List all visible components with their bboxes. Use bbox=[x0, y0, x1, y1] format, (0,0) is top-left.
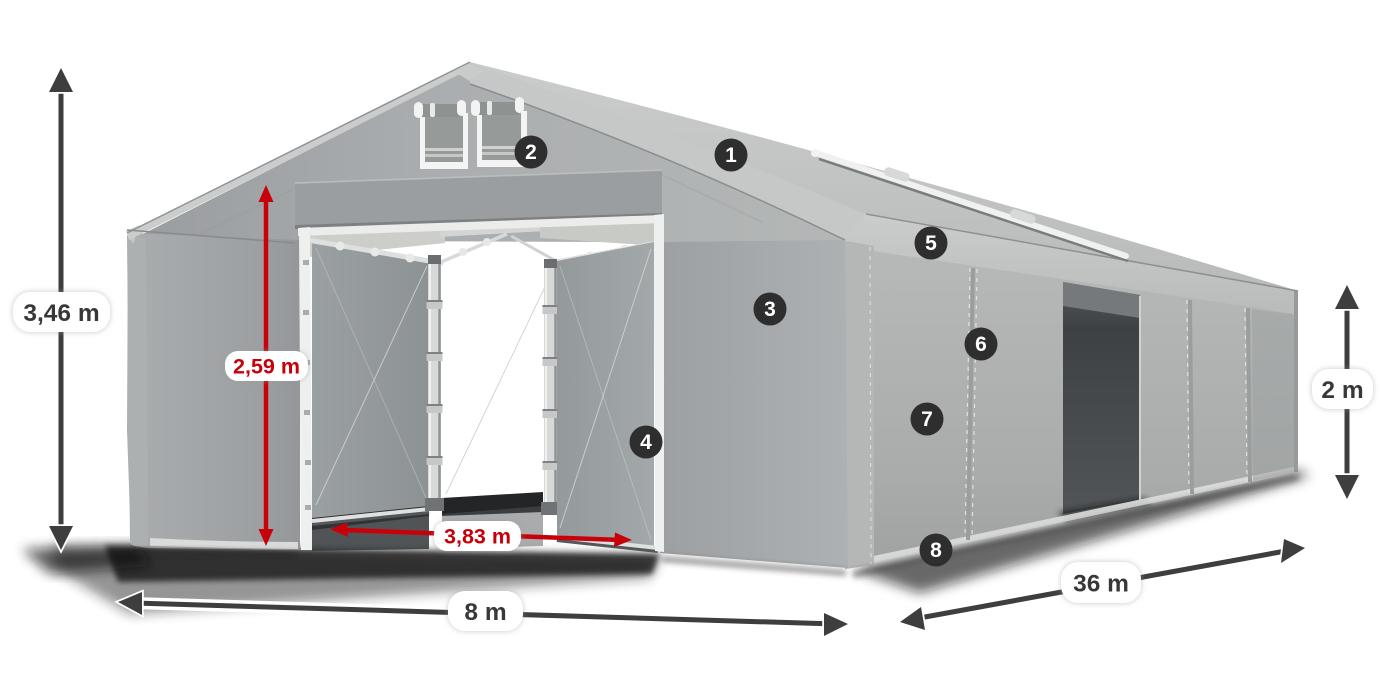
svg-text:36 m: 36 m bbox=[1073, 571, 1129, 598]
svg-text:1: 1 bbox=[725, 144, 737, 167]
svg-text:3: 3 bbox=[764, 298, 776, 321]
svg-text:2,59 m: 2,59 m bbox=[233, 355, 300, 379]
svg-text:3,83 m: 3,83 m bbox=[444, 525, 511, 549]
svg-text:5: 5 bbox=[925, 232, 937, 255]
svg-text:2 m: 2 m bbox=[1321, 377, 1363, 404]
svg-text:6: 6 bbox=[975, 333, 987, 356]
svg-text:3,46 m: 3,46 m bbox=[23, 300, 99, 327]
svg-text:4: 4 bbox=[640, 431, 652, 454]
svg-text:2: 2 bbox=[525, 141, 537, 164]
svg-text:7: 7 bbox=[921, 408, 933, 431]
svg-text:8: 8 bbox=[930, 539, 942, 562]
svg-text:8 m: 8 m bbox=[464, 599, 506, 626]
